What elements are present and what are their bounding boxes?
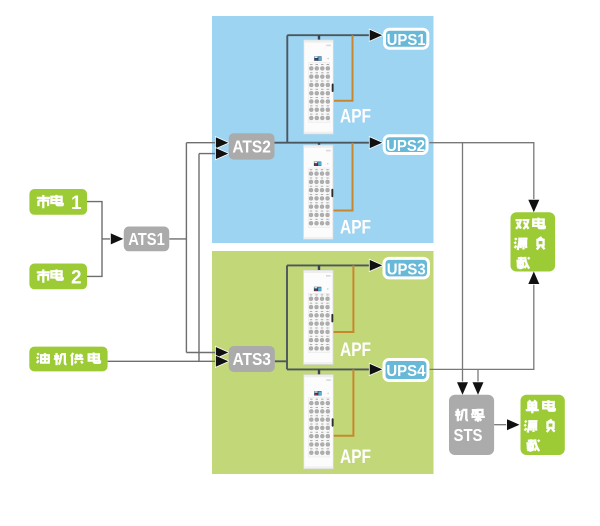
svg-text:STS: STS — [454, 425, 483, 445]
svg-text:ATS1: ATS1 — [128, 229, 165, 249]
svg-text:UPS4: UPS4 — [386, 363, 425, 380]
svg-text:APF: APF — [340, 446, 371, 468]
svg-text:2: 2 — [71, 267, 82, 288]
svg-text:APF: APF — [340, 217, 371, 239]
svg-text:1: 1 — [71, 193, 82, 214]
svg-text:UPS1: UPS1 — [387, 32, 426, 49]
svg-text:ATS2: ATS2 — [232, 137, 271, 157]
svg-text:APF: APF — [340, 339, 371, 361]
svg-text:UPS3: UPS3 — [387, 262, 426, 279]
svg-text:APF: APF — [340, 106, 371, 128]
svg-text:ATS3: ATS3 — [232, 349, 271, 369]
svg-text:UPS2: UPS2 — [386, 138, 425, 155]
